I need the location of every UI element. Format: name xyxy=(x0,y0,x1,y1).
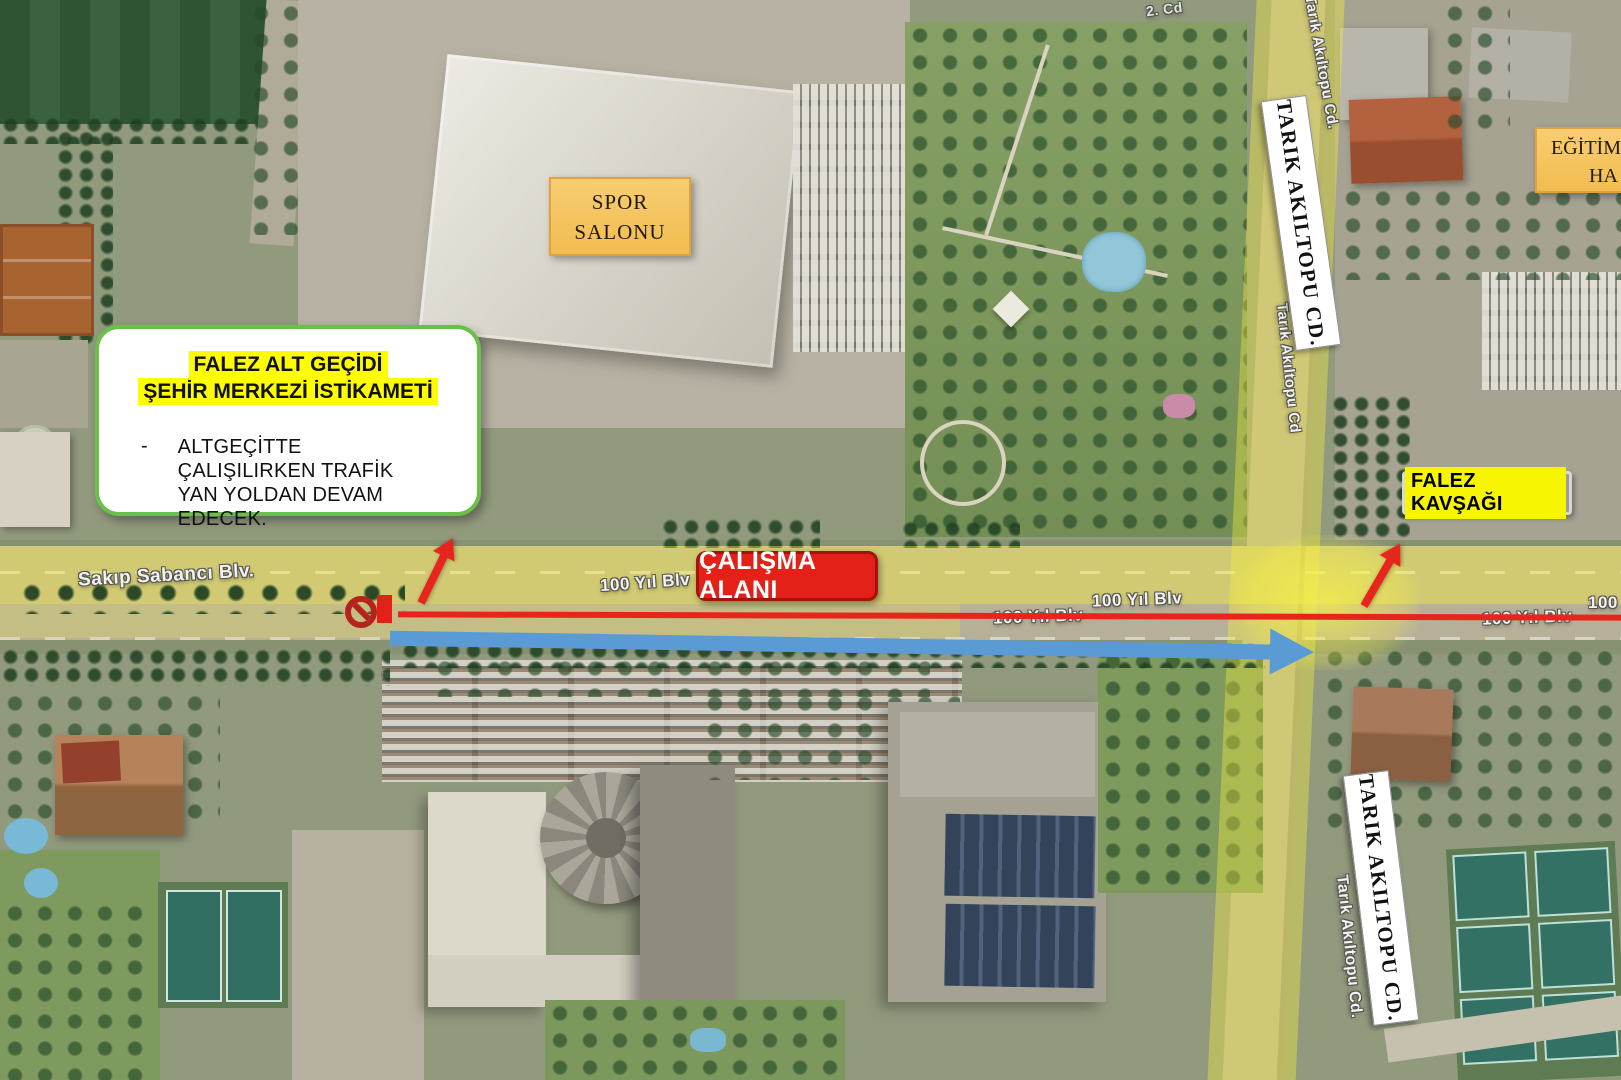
no-entry-icon xyxy=(345,596,377,628)
tennis-court xyxy=(1538,919,1615,989)
calisma-alani-label: ÇALIŞMA ALANI xyxy=(696,551,878,601)
street-label-2-cd: 2. Cd xyxy=(1145,0,1183,19)
tennis-courts xyxy=(158,882,288,1008)
spor-salonu-line1: SPOR xyxy=(592,187,649,217)
callout-title: FALEZ ALT GEÇİDİ ŞEHİR MERKEZİ İSTİKAMET… xyxy=(99,351,477,405)
park-circle-path xyxy=(920,420,1006,506)
closure-marker xyxy=(377,595,392,623)
blue-arrow-head xyxy=(1270,629,1315,676)
solar-panels xyxy=(944,814,1095,899)
soccer-fields xyxy=(0,0,274,124)
street-label-100-yil: 100 Yıl Blv xyxy=(1092,588,1183,611)
egitim-line1: EĞİTİM xyxy=(1537,134,1621,162)
falez-kavsagi-text: FALEZ KAVŞAĞI xyxy=(1405,467,1566,519)
paved-area xyxy=(292,830,424,1080)
bullet-dash: - xyxy=(141,435,148,531)
east-parking-lot xyxy=(1482,272,1621,390)
pool xyxy=(24,868,58,898)
tennis-court xyxy=(166,890,222,1002)
north-parking-lot xyxy=(793,84,911,352)
west-resort-building xyxy=(0,432,70,527)
trees-row xyxy=(0,648,390,686)
blue-arrow-shaft xyxy=(390,631,1270,660)
red-roof-building xyxy=(61,741,121,784)
egitim-line2: HA xyxy=(1537,162,1621,190)
brown-roof-building xyxy=(1350,686,1453,781)
hotel-round-core xyxy=(586,818,626,858)
roadside-trees xyxy=(900,520,1020,548)
trees-cluster xyxy=(1338,185,1621,280)
tennis-court xyxy=(1456,923,1533,993)
callout-body-text: ALTGEÇİTTE ÇALIŞILIRKEN TRAFİK YAN YOLDA… xyxy=(178,435,426,531)
spor-salonu-line2: SALONU xyxy=(574,217,665,247)
street-label-100: 100 xyxy=(1588,593,1618,613)
tennis-court xyxy=(1534,847,1611,917)
trees-cluster xyxy=(1440,0,1510,130)
playground xyxy=(1163,394,1195,418)
trees-row xyxy=(0,116,275,144)
spor-salonu-label: SPOR SALONU xyxy=(549,177,691,256)
hotel-tower xyxy=(640,765,735,1005)
egitim-label: EĞİTİM HA xyxy=(1535,127,1621,193)
work-notice-callout: FALEZ ALT GEÇİDİ ŞEHİR MERKEZİ İSTİKAMET… xyxy=(95,325,481,516)
pool xyxy=(4,818,48,854)
tennis-court xyxy=(226,890,282,1002)
trees-row xyxy=(246,0,302,235)
trees-cluster xyxy=(0,900,150,1080)
pond xyxy=(1082,232,1146,292)
roadside-trees xyxy=(660,518,820,548)
building-rooftop xyxy=(900,712,1095,797)
park-area xyxy=(905,22,1247,537)
solar-panels xyxy=(944,904,1095,989)
west-buildings xyxy=(0,340,88,428)
falez-kavsagi-label: FALEZ KAVŞAĞI xyxy=(1402,471,1572,515)
tennis-court xyxy=(1452,851,1529,921)
callout-title-line2: ŞEHİR MERKEZİ İSTİKAMETİ xyxy=(138,378,437,405)
callout-title-line1: FALEZ ALT GEÇİDİ xyxy=(189,351,388,378)
satellite-map: Sakıp Sabancı Blv. 100 Yıl Blv 100 Yıl B… xyxy=(0,0,1621,1080)
trees-cluster xyxy=(1330,395,1410,540)
callout-body: - ALTGEÇİTTE ÇALIŞILIRKEN TRAFİK YAN YOL… xyxy=(99,435,477,531)
clay-courts xyxy=(0,224,94,336)
garden-pool xyxy=(690,1028,726,1052)
